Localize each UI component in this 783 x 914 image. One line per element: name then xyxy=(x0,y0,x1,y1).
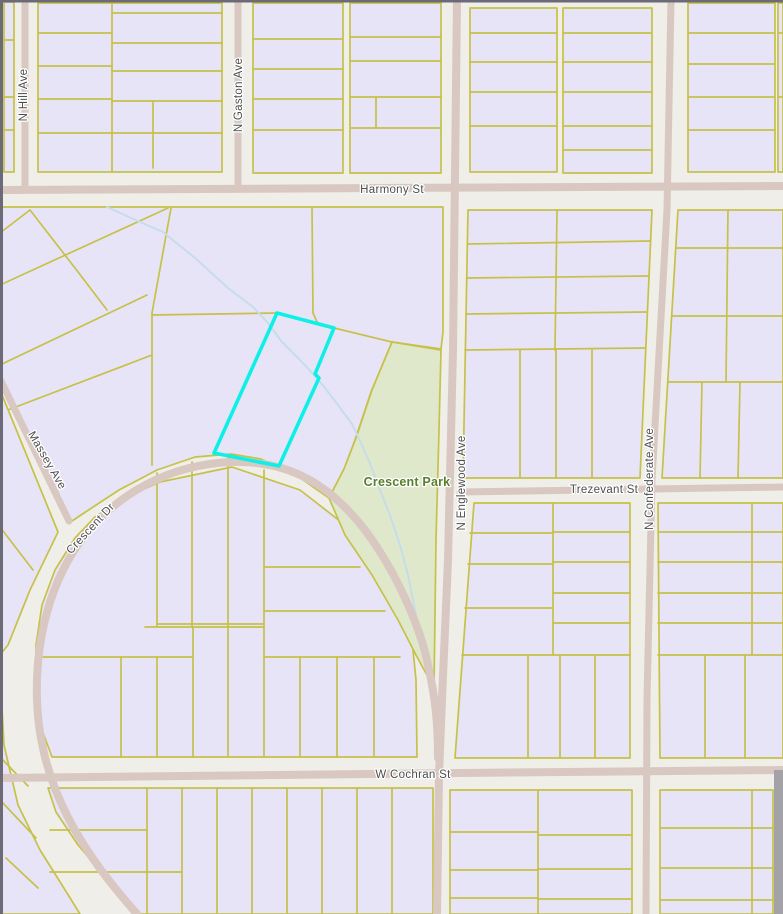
block-midleft-irregular-line xyxy=(312,208,313,313)
block-low-right-1 xyxy=(455,503,630,758)
label-n-hill-ave: N Hill Ave xyxy=(18,69,30,122)
label-harmony-st: Harmony St xyxy=(360,184,424,196)
block-top-edge-sliver xyxy=(778,3,783,172)
label-n-englewood-ave: N Englewood Ave xyxy=(456,435,468,530)
block-mid-right-1 xyxy=(463,210,652,478)
block-top-e xyxy=(688,3,775,172)
top-left-sliver xyxy=(4,2,14,172)
label-n-gaston-ave: N Gaston Ave xyxy=(233,58,245,132)
label-n-confederate-ave: N Confederate Ave xyxy=(644,428,656,530)
block-low-right-2 xyxy=(658,503,783,758)
block-mid-right-2 xyxy=(662,210,783,478)
label-crescent-park: Crescent Park xyxy=(364,475,451,489)
map-edge-bottom-right xyxy=(774,770,783,914)
map-canvas[interactable]: N Hill AveN Gaston AveHarmony StN Englew… xyxy=(0,0,783,914)
block-top-center xyxy=(350,3,441,173)
label-w-cochran-st: W Cochran St xyxy=(375,769,451,781)
label-trezevant-st: Trezevant St xyxy=(570,484,639,496)
map-edge-left xyxy=(0,0,3,914)
block-bottom-right-1 xyxy=(450,790,632,914)
map-edge-top xyxy=(0,0,783,3)
block-gaston-east xyxy=(253,3,343,173)
block-hill-gaston xyxy=(38,3,222,172)
block-bottom-right-2 xyxy=(660,790,773,914)
parcel-map-svg[interactable]: N Hill AveN Gaston AveHarmony StN Englew… xyxy=(0,0,783,914)
